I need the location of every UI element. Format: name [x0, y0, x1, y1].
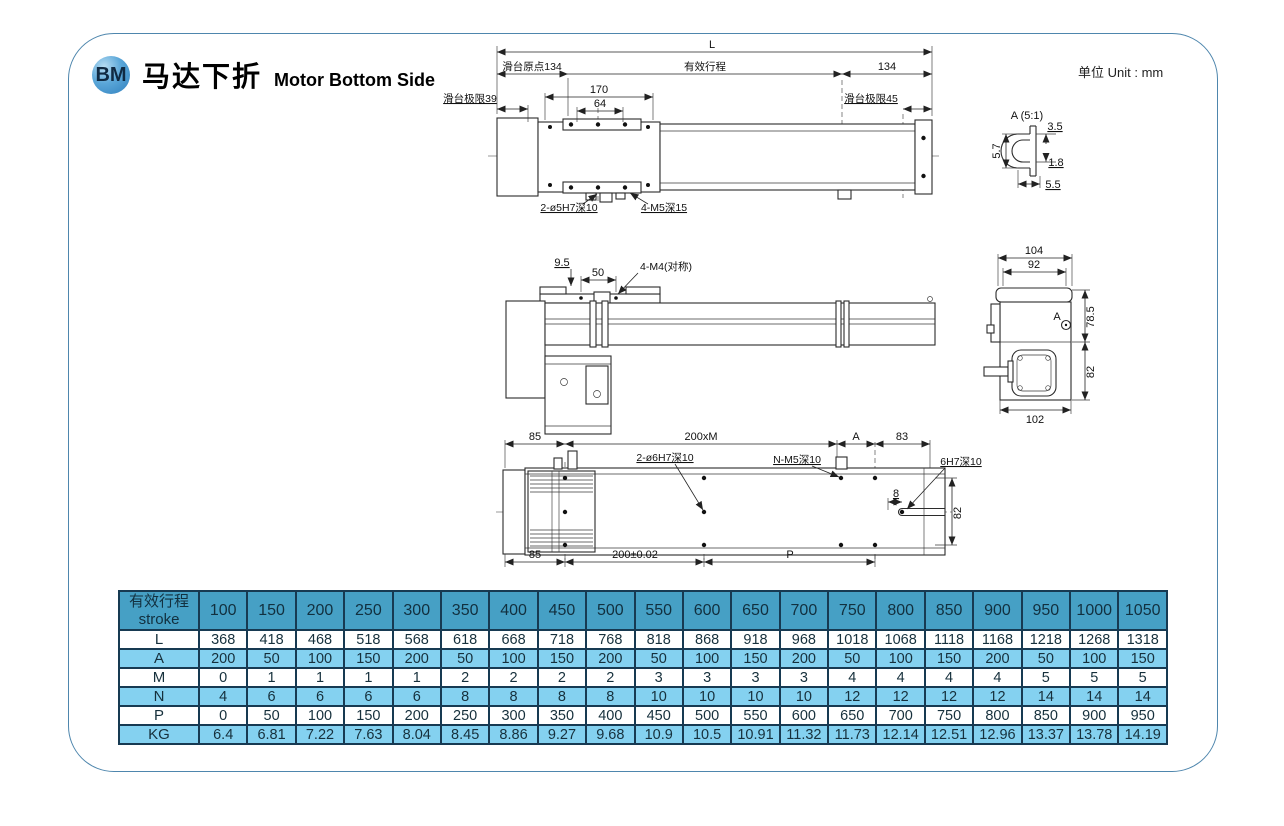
table-cell: 1: [344, 668, 392, 687]
table-cell: 12: [876, 687, 924, 706]
table-cell: 1318: [1118, 630, 1167, 649]
stroke-col-header: 450: [538, 591, 586, 630]
stroke-table: 有效行程stroke100150200250300350400450500550…: [118, 590, 1168, 745]
table-cell: 4: [925, 668, 973, 687]
dim-origin-134: 滑台原点134: [502, 60, 562, 73]
table-cell: 900: [1070, 706, 1118, 725]
dim-8: 8: [893, 488, 899, 500]
stroke-col-header: 300: [393, 591, 441, 630]
dim-92: 92: [1028, 259, 1040, 271]
table-cell: 6: [296, 687, 344, 706]
table-cell: 4: [828, 668, 876, 687]
table-cell: 350: [538, 706, 586, 725]
table-cell: 10: [683, 687, 731, 706]
table-cell: 8.86: [489, 725, 537, 744]
bm-badge-text: BM: [95, 64, 126, 87]
dim-200-tol: 200±0.02: [612, 549, 658, 561]
dim-82-end: 82: [1085, 366, 1097, 378]
end-view-a-label: A: [1053, 311, 1061, 323]
dim-82-bottom: 82: [952, 507, 964, 519]
table-cell: 11.32: [780, 725, 828, 744]
stroke-col-header: 200: [296, 591, 344, 630]
table-cell: 9.27: [538, 725, 586, 744]
table-cell: 100: [489, 649, 537, 668]
stroke-col-header: 100: [199, 591, 247, 630]
table-cell: 300: [489, 706, 537, 725]
table-cell: 7.22: [296, 725, 344, 744]
stroke-col-header: 1050: [1118, 591, 1167, 630]
table-cell: 1268: [1070, 630, 1118, 649]
table-cell: 200: [586, 649, 634, 668]
dim-50: 50: [592, 267, 604, 279]
stroke-col-header: 700: [780, 591, 828, 630]
table-cell: 700: [876, 706, 924, 725]
table-cell: 3: [731, 668, 779, 687]
table-cell: 200: [780, 649, 828, 668]
side-view: 9.5 50 4-M4(对称): [506, 257, 935, 434]
stroke-header-label: 有效行程stroke: [119, 591, 199, 630]
table-cell: 50: [1022, 649, 1070, 668]
table-cell: 968: [780, 630, 828, 649]
stroke-col-header: 350: [441, 591, 489, 630]
table-cell: 11.73: [828, 725, 876, 744]
stroke-col-header: 800: [876, 591, 924, 630]
table-row-n: N4666688881010101012121212141414: [119, 687, 1167, 706]
table-cell: 150: [1118, 649, 1167, 668]
dim-p: P: [786, 549, 793, 561]
detail-a-title: A (5:1): [1011, 110, 1043, 122]
row-label: N: [119, 687, 199, 706]
table-row-p: P050100150200250300350400450500550600650…: [119, 706, 1167, 725]
table-cell: 4: [199, 687, 247, 706]
table-cell: 14: [1022, 687, 1070, 706]
stroke-col-header: 500: [586, 591, 634, 630]
table-cell: 950: [1118, 706, 1167, 725]
table-cell: 1068: [876, 630, 924, 649]
table-cell: 4: [973, 668, 1021, 687]
table-cell: 5: [1070, 668, 1118, 687]
dim-134: 134: [878, 61, 896, 73]
row-label: L: [119, 630, 199, 649]
table-cell: 13.78: [1070, 725, 1118, 744]
table-cell: 50: [247, 706, 295, 725]
table-cell: 7.63: [344, 725, 392, 744]
table-cell: 750: [925, 706, 973, 725]
table-cell: 13.37: [1022, 725, 1070, 744]
table-row-kg: KG6.46.817.227.638.048.458.869.279.6810.…: [119, 725, 1167, 744]
table-cell: 50: [441, 649, 489, 668]
page-title-zh: 马达下折: [142, 55, 262, 95]
table-cell: 200: [199, 649, 247, 668]
table-cell: 9.68: [586, 725, 634, 744]
dim-limit-45: 滑台极限45: [844, 92, 898, 105]
label-4xm4: 4-M4(对称): [640, 260, 692, 273]
stroke-col-header: 750: [828, 591, 876, 630]
table-cell: 1118: [925, 630, 973, 649]
table-cell: 400: [586, 706, 634, 725]
table-cell: 550: [731, 706, 779, 725]
row-label: M: [119, 668, 199, 687]
dim-9p5: 9.5: [554, 257, 569, 269]
dim-85-top: 85: [529, 431, 541, 443]
table-cell: 2: [441, 668, 489, 687]
table-row-a: A200501001502005010015020050100150200501…: [119, 649, 1167, 668]
end-view: 104 92 A 78.5 82 102: [984, 245, 1097, 426]
label-2xo6h7: 2-ø6H7深10: [636, 452, 693, 464]
row-label: KG: [119, 725, 199, 744]
stroke-dimension-table: 有效行程stroke100150200250300350400450500550…: [118, 590, 1168, 745]
table-cell: 418: [247, 630, 295, 649]
table-cell: 2: [489, 668, 537, 687]
datasheet-page: { "header": { "badge": "BM", "title_zh":…: [0, 0, 1284, 826]
table-cell: 1168: [973, 630, 1021, 649]
table-cell: 6: [247, 687, 295, 706]
stroke-col-header: 1000: [1070, 591, 1118, 630]
stroke-col-header: 150: [247, 591, 295, 630]
dim-104: 104: [1025, 245, 1043, 257]
table-cell: 12.96: [973, 725, 1021, 744]
label-2xo5h7: 2-ø5H7深10: [540, 202, 597, 214]
table-cell: 650: [828, 706, 876, 725]
table-cell: 768: [586, 630, 634, 649]
table-cell: 50: [635, 649, 683, 668]
table-row-m: M01111222233334444555: [119, 668, 1167, 687]
table-cell: 10.91: [731, 725, 779, 744]
table-cell: 10.9: [635, 725, 683, 744]
table-cell: 818: [635, 630, 683, 649]
stroke-col-header: 250: [344, 591, 392, 630]
table-cell: 14: [1118, 687, 1167, 706]
table-cell: 200: [393, 649, 441, 668]
table-cell: 12: [973, 687, 1021, 706]
table-cell: 500: [683, 706, 731, 725]
table-cell: 8.04: [393, 725, 441, 744]
table-cell: 8: [441, 687, 489, 706]
table-cell: 8: [489, 687, 537, 706]
table-cell: 12.14: [876, 725, 924, 744]
table-cell: 518: [344, 630, 392, 649]
dim-effective-stroke: 有效行程: [684, 60, 726, 73]
table-cell: 50: [828, 649, 876, 668]
table-cell: 14: [1070, 687, 1118, 706]
table-cell: 12.51: [925, 725, 973, 744]
table-cell: 0: [199, 706, 247, 725]
top-view: L 滑台原点134 有效行程 134 170 64 滑台极限39 滑台极限45 …: [443, 39, 940, 214]
stroke-col-header: 400: [489, 591, 537, 630]
table-cell: 10: [731, 687, 779, 706]
table-cell: 200: [973, 649, 1021, 668]
table-cell: 8: [538, 687, 586, 706]
table-cell: 618: [441, 630, 489, 649]
stroke-col-header: 550: [635, 591, 683, 630]
table-cell: 2: [538, 668, 586, 687]
table-cell: 0: [199, 668, 247, 687]
dim-a: A: [852, 431, 860, 443]
dim-1p8: 1.8: [1048, 157, 1063, 169]
dim-102: 102: [1026, 414, 1044, 426]
table-cell: 150: [731, 649, 779, 668]
table-cell: 3: [635, 668, 683, 687]
dim-L: L: [709, 39, 715, 51]
table-cell: 100: [296, 706, 344, 725]
table-cell: 4: [876, 668, 924, 687]
bm-badge: BM: [92, 56, 130, 94]
table-cell: 1018: [828, 630, 876, 649]
stroke-col-header: 600: [683, 591, 731, 630]
table-cell: 3: [780, 668, 828, 687]
table-cell: 6.4: [199, 725, 247, 744]
table-cell: 568: [393, 630, 441, 649]
table-cell: 5: [1118, 668, 1167, 687]
table-cell: 100: [876, 649, 924, 668]
table-cell: 100: [683, 649, 731, 668]
dim-200xm: 200xM: [684, 431, 717, 443]
table-cell: 468: [296, 630, 344, 649]
table-cell: 200: [393, 706, 441, 725]
table-cell: 10: [635, 687, 683, 706]
table-cell: 6.81: [247, 725, 295, 744]
page-header: BM 马达下折 Motor Bottom Side: [92, 55, 435, 95]
table-row-l: L368418468518568618668718768818868918968…: [119, 630, 1167, 649]
table-cell: 12: [828, 687, 876, 706]
table-cell: 1218: [1022, 630, 1070, 649]
table-cell: 2: [586, 668, 634, 687]
stroke-col-header: 950: [1022, 591, 1070, 630]
dim-78p5: 78.5: [1085, 306, 1097, 327]
table-cell: 918: [731, 630, 779, 649]
table-cell: 14.19: [1118, 725, 1167, 744]
table-cell: 8: [586, 687, 634, 706]
table-cell: 1: [393, 668, 441, 687]
stroke-col-header: 650: [731, 591, 779, 630]
table-cell: 100: [296, 649, 344, 668]
table-cell: 150: [344, 649, 392, 668]
table-cell: 50: [247, 649, 295, 668]
table-cell: 150: [344, 706, 392, 725]
dim-64: 64: [594, 98, 606, 110]
table-cell: 6: [393, 687, 441, 706]
dim-170: 170: [590, 84, 608, 96]
table-cell: 10: [780, 687, 828, 706]
table-cell: 250: [441, 706, 489, 725]
table-cell: 800: [973, 706, 1021, 725]
table-cell: 668: [489, 630, 537, 649]
stroke-col-header: 850: [925, 591, 973, 630]
label-6h7: 6H7深10: [940, 456, 982, 468]
table-cell: 6: [344, 687, 392, 706]
stroke-col-header: 900: [973, 591, 1021, 630]
table-cell: 718: [538, 630, 586, 649]
dim-5p7: 5.7: [991, 143, 1003, 158]
table-cell: 600: [780, 706, 828, 725]
dim-85-bottom: 85: [529, 549, 541, 561]
table-cell: 5: [1022, 668, 1070, 687]
detail-a-view: A (5:1) 3.5 5.7 1.8 5.5: [991, 110, 1064, 191]
dim-5p5: 5.5: [1045, 179, 1060, 191]
dim-83: 83: [896, 431, 908, 443]
table-cell: 10.5: [683, 725, 731, 744]
table-cell: 12: [925, 687, 973, 706]
table-cell: 150: [925, 649, 973, 668]
row-label: A: [119, 649, 199, 668]
dim-3p5: 3.5: [1047, 121, 1062, 133]
table-cell: 850: [1022, 706, 1070, 725]
table-cell: 450: [635, 706, 683, 725]
table-cell: 8.45: [441, 725, 489, 744]
table-cell: 1: [296, 668, 344, 687]
page-title-en: Motor Bottom Side: [274, 70, 435, 91]
technical-drawings: L 滑台原点134 有效行程 134 170 64 滑台极限39 滑台极限45 …: [440, 30, 1180, 591]
table-cell: 868: [683, 630, 731, 649]
table-cell: 100: [1070, 649, 1118, 668]
dim-limit-39: 滑台极限39: [443, 92, 497, 105]
table-cell: 150: [538, 649, 586, 668]
bottom-view: 85 200xM A 83 2-ø6H7深10 N-M5深10 6H7深10 8…: [496, 431, 982, 567]
table-cell: 1: [247, 668, 295, 687]
row-label: P: [119, 706, 199, 725]
table-cell: 368: [199, 630, 247, 649]
label-nxm5: N-M5深10: [773, 454, 821, 466]
table-cell: 3: [683, 668, 731, 687]
